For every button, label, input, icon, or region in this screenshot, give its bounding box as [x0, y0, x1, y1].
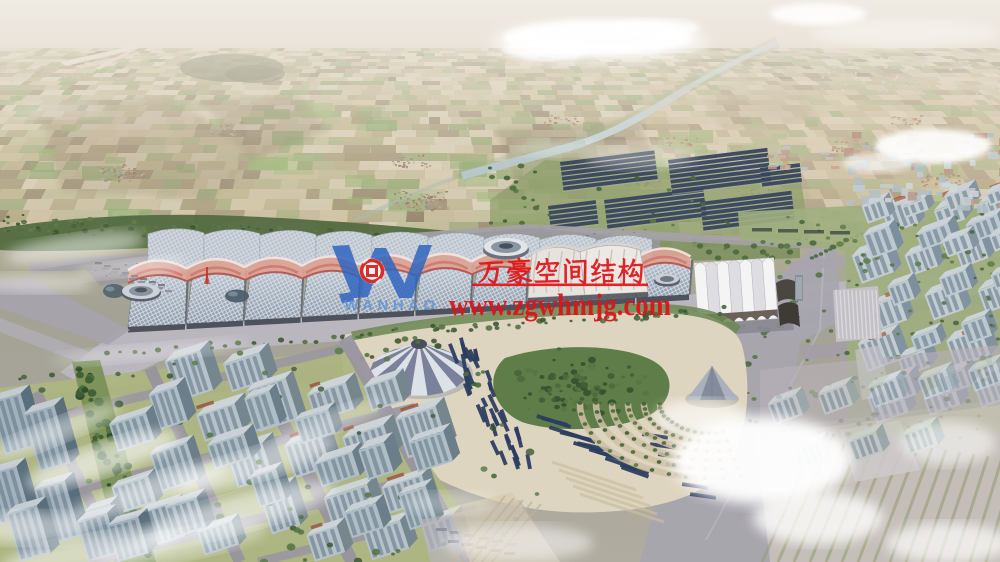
svg-text:WANHAO: WANHAO — [344, 297, 439, 314]
svg-text:www.zgwhmjg.com: www.zgwhmjg.com — [449, 287, 671, 322]
